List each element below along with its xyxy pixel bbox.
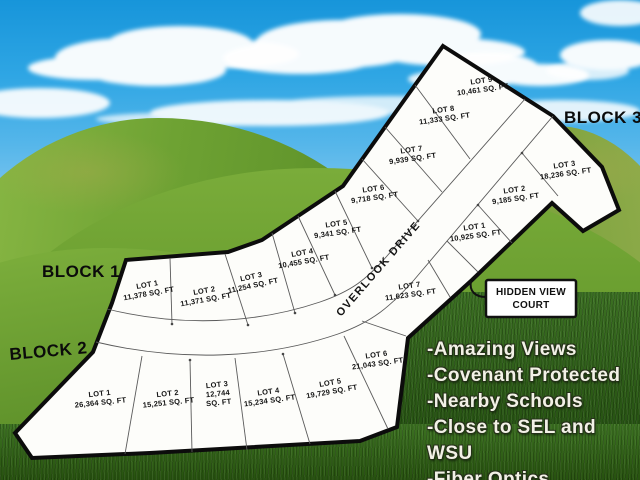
feature-item: -Nearby Schools bbox=[427, 389, 640, 415]
feature-item: -Covenant Protected bbox=[427, 363, 640, 389]
block2-label: BLOCK 2 bbox=[9, 338, 88, 364]
feature-list: -Amazing Views -Covenant Protected -Near… bbox=[427, 337, 640, 480]
screenshot: OVERLOOK DRIVE BLOCK 1 BLOCK 2 BLOCK 3 L… bbox=[0, 0, 640, 480]
block3-label: BLOCK 3 bbox=[564, 108, 640, 127]
court-callout-box: HIDDEN VIEW COURT bbox=[486, 280, 576, 317]
svg-text:COURT: COURT bbox=[512, 300, 549, 311]
court-callout-leader bbox=[471, 281, 486, 297]
svg-text:HIDDEN VIEW: HIDDEN VIEW bbox=[496, 287, 566, 298]
block1-label: BLOCK 1 bbox=[42, 262, 120, 281]
feature-item: -Fiber Optics bbox=[427, 467, 640, 480]
feature-item: -Amazing Views bbox=[427, 337, 640, 363]
lot-label-block2-lot3: LOT 312,744SQ. FT bbox=[204, 379, 232, 409]
feature-item: -Close to SEL and WSU bbox=[427, 415, 640, 467]
svg-text:LOT 312,744SQ. FT: LOT 312,744SQ. FT bbox=[204, 379, 232, 409]
